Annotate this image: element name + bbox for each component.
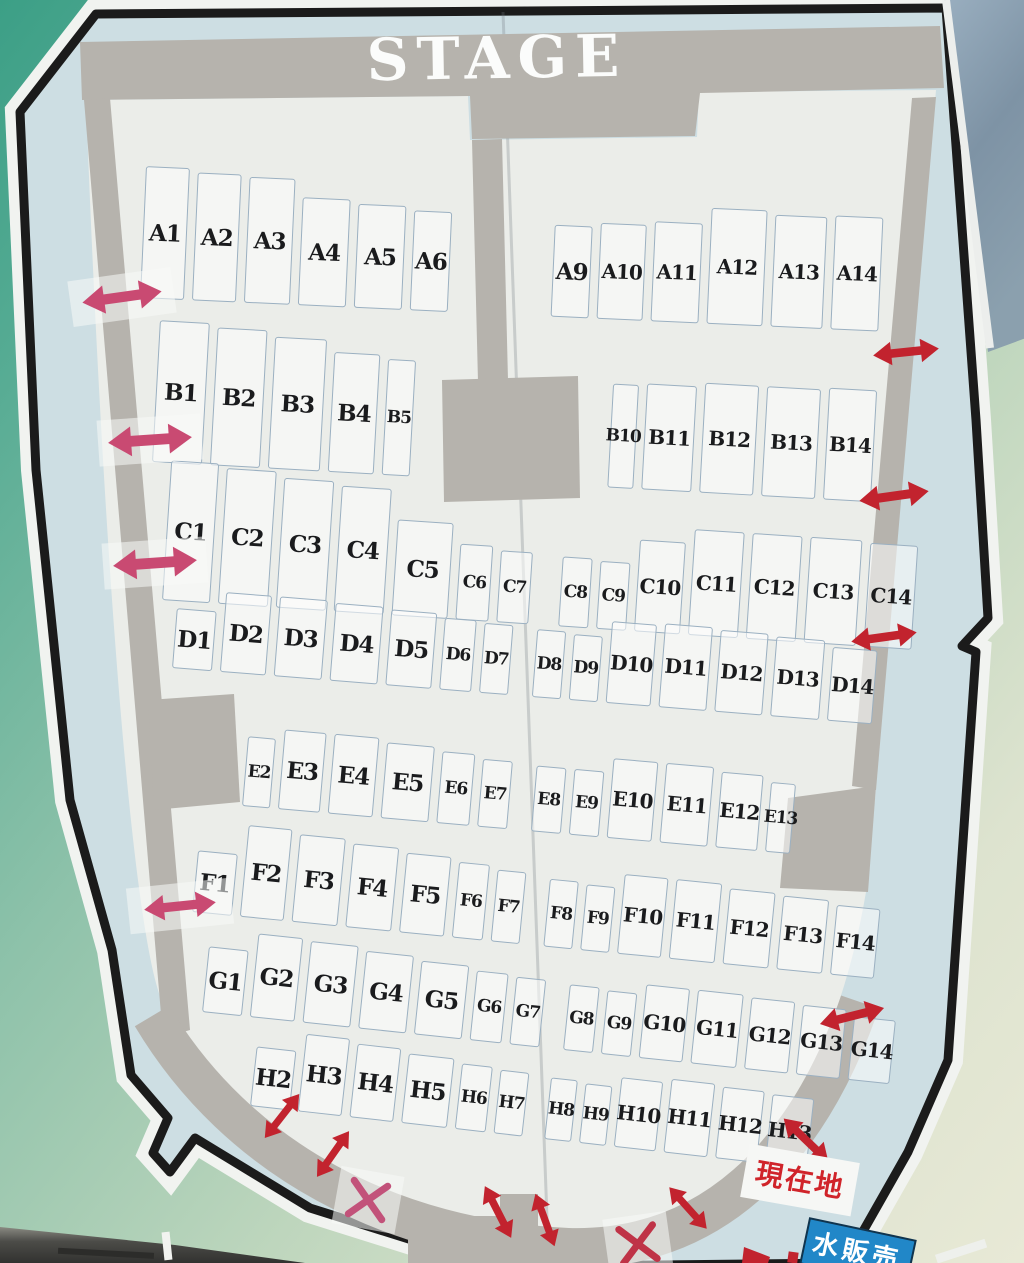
seat-block-D11: D11 [658,623,713,711]
seat-label: A5 [364,243,397,271]
seat-label: B10 [605,425,641,447]
seat-block-G5: G5 [414,961,469,1040]
seat-block-D13: D13 [770,636,825,720]
seat-block-B10: B10 [607,384,639,489]
seat-label: C4 [346,536,380,565]
seat-block-E10: E10 [607,758,659,842]
seat-label: A3 [253,227,286,255]
seat-label: E13 [763,807,798,830]
seat-label: A4 [308,238,341,266]
seat-block-G4: G4 [358,951,414,1034]
seat-label: B3 [280,390,315,419]
seat-label: E9 [574,792,598,814]
seat-block-D8: D8 [532,629,566,699]
seat-block-E4: E4 [328,734,380,818]
seat-label: F13 [782,921,823,949]
seat-label: D10 [609,650,653,677]
seat-block-A2: A2 [192,172,242,302]
seat-block-H5: H5 [401,1053,455,1128]
seat-label: D13 [776,665,820,692]
seat-label: F4 [356,873,389,903]
seat-label: G10 [642,1009,686,1037]
seat-block-E6: E6 [436,751,475,826]
seat-label: H8 [547,1098,575,1121]
seat-block-H12: H12 [715,1087,765,1163]
seat-block-F8: F8 [543,879,578,950]
seat-block-H4: H4 [349,1044,401,1122]
seat-block-F10: F10 [617,874,669,958]
seat-block-D6: D6 [439,618,477,692]
seat-block-grid: A1A2A3A4A5A6A9A10A11A12A13A14B1B2B3B4B5B… [0,0,1024,1263]
seat-block-D9: D9 [569,634,603,702]
seat-label: A10 [601,259,642,285]
seat-label: E4 [337,761,371,791]
seat-label: E11 [666,791,708,818]
seat-block-H2: H2 [250,1046,296,1110]
seat-label: H11 [666,1104,712,1133]
seat-block-A6: A6 [410,210,452,312]
seat-block-F2: F2 [240,825,293,921]
seat-block-E2: E2 [242,736,276,808]
seat-block-G1: G1 [202,946,249,1016]
seat-block-B1: B1 [152,320,210,465]
seat-block-F11: F11 [669,879,723,963]
seat-label: C7 [502,577,527,599]
seat-label: B2 [221,383,256,412]
seat-label: F10 [622,902,663,930]
seat-label: D1 [176,625,212,655]
seat-label: D5 [393,634,429,664]
seat-block-D7: D7 [479,623,514,695]
seat-block-E8: E8 [531,766,567,834]
seat-block-A13: A13 [770,215,827,329]
seat-label: C3 [288,530,322,559]
seat-label: H2 [254,1063,293,1094]
seat-label: D6 [445,644,471,666]
seat-label: H6 [460,1087,488,1110]
seat-label: B13 [770,429,813,455]
seat-block-B13: B13 [761,386,821,499]
seat-label: A13 [778,259,819,285]
seat-block-D2: D2 [220,592,272,675]
seat-block-E5: E5 [380,742,434,822]
seat-block-A3: A3 [244,177,296,305]
seat-label: C9 [601,585,626,607]
seat-label: C12 [753,574,795,601]
seat-block-A14: A14 [830,215,883,331]
seat-label: A2 [200,223,233,251]
seat-block-F12: F12 [722,888,775,968]
seat-label: B4 [337,399,372,428]
seat-block-E3: E3 [278,729,327,812]
seat-label: D3 [283,623,319,653]
seat-block-G7: G7 [509,977,546,1048]
seat-label: A9 [555,257,588,285]
seat-label: G2 [258,962,294,992]
seat-block-F13: F13 [776,896,829,974]
seat-label: C6 [462,572,487,594]
seat-label: H5 [409,1075,448,1106]
seat-label: F6 [459,890,483,912]
seat-label: B5 [386,407,411,428]
seat-label: H7 [497,1092,525,1115]
seat-block-F4: F4 [345,843,399,931]
seat-label: A6 [414,247,447,275]
seat-block-H7: H7 [493,1070,529,1137]
seat-label: E6 [444,778,468,800]
seat-block-C2: C2 [218,468,277,607]
seat-block-B4: B4 [328,352,381,474]
seat-block-F9: F9 [580,884,615,953]
seat-label: C2 [230,523,264,552]
seat-block-H9: H9 [579,1083,613,1146]
seat-label: E8 [536,789,560,811]
seat-label: H3 [305,1060,344,1091]
seat-label: C5 [406,555,440,584]
seat-block-G10: G10 [639,984,690,1062]
seat-block-B12: B12 [699,383,759,496]
seat-label: F8 [549,903,573,925]
seat-label: E7 [483,783,507,805]
seat-label: F11 [675,907,716,935]
seat-label: H10 [615,1100,661,1129]
seat-label: A12 [716,254,757,280]
seat-block-F6: F6 [452,862,490,941]
seat-block-E11: E11 [659,763,714,847]
seat-label: G3 [312,969,348,999]
seat-label: E5 [391,768,425,798]
seat-label: C10 [639,574,681,601]
seat-label: E10 [611,786,653,813]
seat-label: G4 [368,977,404,1007]
seat-label: C14 [870,583,912,610]
seat-block-G14: G14 [847,1016,895,1084]
seat-block-H3: H3 [298,1034,350,1116]
seat-label: A11 [656,259,697,285]
seat-block-D3: D3 [274,596,328,680]
seat-block-H11: H11 [663,1079,715,1157]
seat-label: D9 [573,657,599,679]
seat-block-D14: D14 [827,647,878,724]
seat-block-A10: A10 [597,223,647,321]
seat-block-D1: D1 [172,608,217,671]
seat-label: H12 [717,1110,763,1139]
seat-block-C14: C14 [863,543,918,650]
seat-block-A11: A11 [650,221,702,323]
seat-label: D12 [719,659,763,686]
seat-block-D12: D12 [714,630,768,716]
seat-label: F1 [199,868,232,898]
seat-label: G14 [850,1036,894,1064]
seat-label: F7 [497,896,521,918]
seat-block-B5: B5 [382,359,416,476]
seat-block-C1: C1 [162,460,219,603]
seat-label: F14 [835,928,876,956]
seat-label: D11 [664,654,708,681]
seat-label: C11 [695,570,737,597]
seat-label: G5 [423,985,459,1015]
seat-block-B14: B14 [823,388,877,503]
seat-block-D5: D5 [385,609,437,688]
seat-label: G6 [476,996,502,1018]
seat-block-B2: B2 [210,327,268,468]
seat-block-G13: G13 [796,1005,847,1079]
seat-label: G9 [606,1012,632,1034]
seat-block-F3: F3 [292,834,346,926]
seat-label: C8 [563,582,588,604]
seat-label: B1 [163,378,198,407]
seat-block-F5: F5 [399,853,452,937]
seat-block-D10: D10 [606,621,657,706]
seat-block-F14: F14 [830,905,881,979]
seat-block-E7: E7 [477,759,513,829]
seat-label: D8 [536,653,562,675]
seat-block-A5: A5 [354,204,407,310]
seat-block-E12: E12 [715,772,763,851]
seat-label: E3 [285,756,319,786]
seat-label: F9 [586,908,610,930]
seat-label: G12 [748,1021,792,1049]
seat-block-F7: F7 [491,870,527,944]
seat-block-C11: C11 [688,529,745,638]
seat-block-C12: C12 [746,533,803,642]
seat-label: H4 [356,1067,395,1098]
seat-block-H13: H13 [765,1094,815,1168]
seat-label: D7 [483,648,509,670]
seat-block-A12: A12 [706,208,767,326]
seat-block-B11: B11 [641,384,697,493]
seat-block-G11: G11 [690,990,743,1068]
seat-block-E13: E13 [765,782,796,854]
seat-label: G11 [695,1015,739,1043]
seat-block-G2: G2 [250,933,304,1021]
seat-block-G12: G12 [744,997,795,1073]
seat-label: B11 [648,425,691,451]
seat-block-B3: B3 [268,337,327,472]
seat-block-G8: G8 [563,984,600,1053]
seat-block-H8: H8 [544,1077,578,1142]
seat-label: C1 [174,517,208,546]
seat-block-G3: G3 [302,941,358,1028]
seat-block-G6: G6 [470,971,509,1044]
seat-block-H10: H10 [614,1077,664,1151]
seat-label: F2 [250,858,283,888]
seat-block-H6: H6 [455,1063,493,1132]
seat-label: G8 [568,1007,594,1029]
seat-label: G13 [799,1028,843,1056]
seat-block-C3: C3 [276,478,335,611]
seat-label: A1 [148,219,181,247]
seat-label: F3 [302,865,335,895]
seat-label: G7 [515,1001,541,1023]
seat-label: B12 [708,426,751,452]
seat-block-A4: A4 [298,197,351,307]
seat-label: G1 [207,966,243,996]
seat-label: H9 [582,1103,610,1126]
seat-block-A1: A1 [140,166,190,300]
seat-label: F12 [728,915,769,943]
seat-label: H13 [766,1117,812,1146]
seat-block-G9: G9 [601,990,638,1057]
seat-label: D4 [339,629,375,659]
seat-label: C13 [812,578,854,605]
seat-label: B14 [829,432,872,458]
seat-label: F5 [409,880,442,910]
seat-block-C10: C10 [634,540,686,635]
seat-row-A: A1A2A3A4A5A6A9A10A11A12A13A14 [140,166,884,331]
seat-label: D2 [228,619,264,649]
seat-block-A9: A9 [551,225,593,319]
seat-block-E9: E9 [569,769,605,837]
seat-label: D14 [830,672,874,699]
seat-block-D4: D4 [329,603,383,685]
seat-label: A14 [836,261,877,287]
seat-block-C13: C13 [804,537,863,646]
seat-block-F1: F1 [192,850,238,916]
seat-block-C4: C4 [334,486,392,615]
seat-label: E2 [247,761,271,783]
seat-label: E12 [718,798,760,825]
